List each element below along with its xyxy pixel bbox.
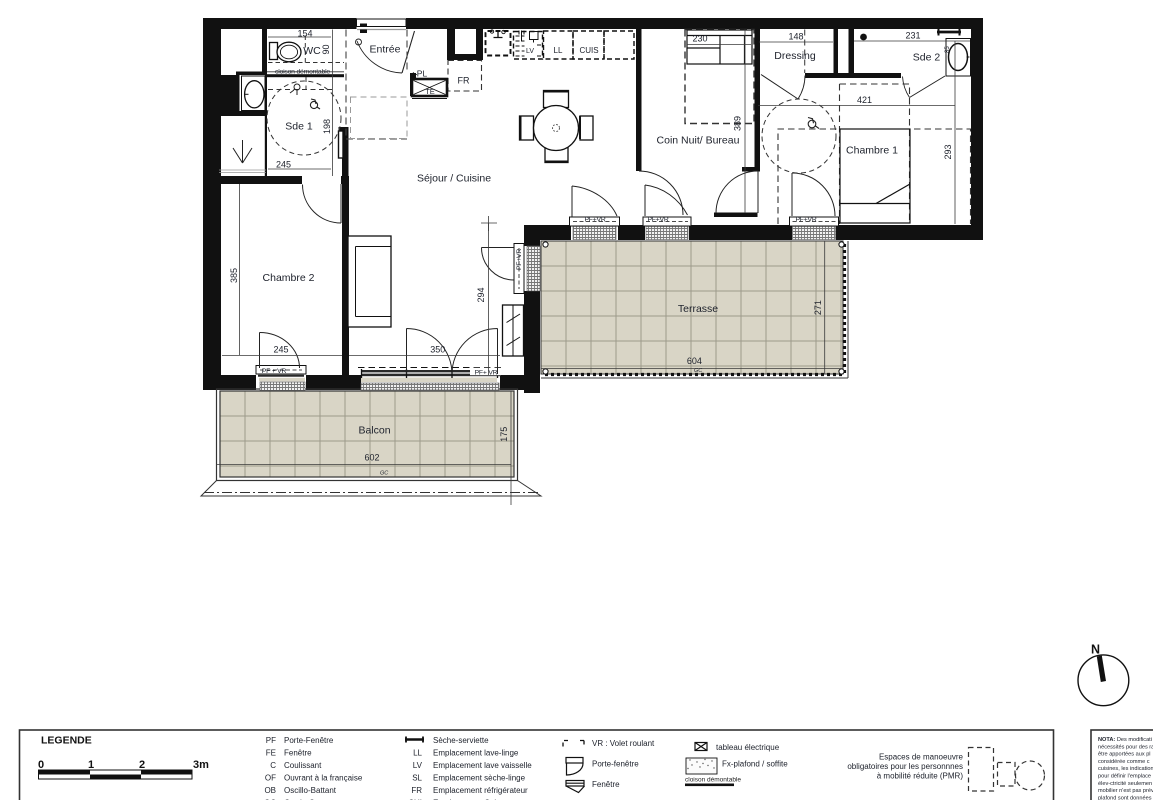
svg-text:OF: OF bbox=[265, 774, 276, 783]
svg-text:CUIS: CUIS bbox=[579, 46, 598, 55]
svg-text:cloison démontable: cloison démontable bbox=[685, 777, 741, 784]
svg-text:Fenêtre: Fenêtre bbox=[284, 749, 312, 758]
svg-text:245: 245 bbox=[276, 160, 291, 170]
svg-text:Porte-fenêtre: Porte-fenêtre bbox=[592, 760, 639, 769]
svg-text:LV: LV bbox=[526, 48, 534, 55]
svg-text:LV: LV bbox=[413, 761, 423, 770]
svg-text:LL: LL bbox=[413, 749, 422, 758]
svg-text:90: 90 bbox=[321, 44, 331, 54]
svg-text:231: 231 bbox=[905, 31, 920, 41]
svg-text:tableau électrique: tableau électrique bbox=[716, 743, 780, 752]
svg-text:PF+ VR: PF+ VR bbox=[475, 370, 498, 377]
svg-text:Sèche-serviette: Sèche-serviette bbox=[433, 736, 489, 745]
svg-text:Coin Nuit/ Bureau: Coin Nuit/ Bureau bbox=[657, 135, 740, 147]
svg-text:148: 148 bbox=[788, 32, 803, 42]
svg-text:Ouvrant à la française: Ouvrant à la française bbox=[284, 774, 363, 783]
svg-text:PF + VR: PF + VR bbox=[262, 368, 287, 375]
svg-text:Chambre 2: Chambre 2 bbox=[263, 272, 315, 284]
svg-text:FE: FE bbox=[266, 749, 276, 758]
svg-text:Oscillo-Battant: Oscillo-Battant bbox=[284, 786, 337, 795]
svg-text:Séjour / Cuisine: Séjour / Cuisine bbox=[417, 173, 491, 185]
svg-text:PF+VR: PF+VR bbox=[647, 217, 668, 224]
svg-text:198: 198 bbox=[322, 119, 332, 134]
svg-text:SL: SL bbox=[412, 774, 422, 783]
svg-text:85: 85 bbox=[945, 46, 951, 53]
svg-text:élev-ctricité seulemen: élev-ctricité seulemen bbox=[1098, 781, 1152, 787]
svg-text:154: 154 bbox=[297, 29, 312, 39]
svg-text:2: 2 bbox=[139, 759, 145, 771]
svg-text:cloison démontable: cloison démontable bbox=[275, 69, 330, 76]
svg-text:Terrasse: Terrasse bbox=[678, 303, 718, 315]
svg-text:Dressing: Dressing bbox=[774, 50, 816, 62]
svg-text:obligatoires pour les personnn: obligatoires pour les personnnes bbox=[847, 762, 963, 771]
svg-text:385: 385 bbox=[229, 268, 239, 283]
svg-text:mobilier n'est pas prév: mobilier n'est pas prév bbox=[1098, 788, 1153, 794]
svg-text:0: 0 bbox=[38, 759, 44, 771]
svg-text:PF: PF bbox=[266, 736, 276, 745]
svg-text:Balcon: Balcon bbox=[358, 425, 390, 437]
svg-text:GC: GC bbox=[694, 368, 702, 374]
svg-text:C: C bbox=[270, 761, 276, 770]
svg-text:GC: GC bbox=[380, 471, 388, 477]
svg-text:389: 389 bbox=[733, 116, 743, 131]
svg-text:Chambre 1: Chambre 1 bbox=[846, 145, 898, 157]
svg-text:cuisines, les indications: cuisines, les indications bbox=[1098, 766, 1153, 772]
svg-text:VR : Volet roulant: VR : Volet roulant bbox=[592, 739, 655, 748]
svg-text:nécessités pour des ra: nécessités pour des ra bbox=[1098, 744, 1153, 750]
svg-text:Emplacement réfrigérateur: Emplacement réfrigérateur bbox=[433, 786, 528, 795]
svg-text:Coulissant: Coulissant bbox=[284, 761, 322, 770]
svg-text:245: 245 bbox=[273, 345, 288, 355]
svg-text:Porte-Fenêtre: Porte-Fenêtre bbox=[284, 736, 334, 745]
svg-text:Sde 1: Sde 1 bbox=[285, 121, 313, 133]
svg-text:1: 1 bbox=[88, 759, 94, 771]
svg-text:271: 271 bbox=[813, 300, 823, 315]
svg-text:Emplacement lave vaisselle: Emplacement lave vaisselle bbox=[433, 761, 532, 770]
svg-text:Fenêtre: Fenêtre bbox=[592, 780, 620, 789]
svg-text:pour définir l'emplace: pour définir l'emplace bbox=[1098, 774, 1151, 780]
svg-text:OB: OB bbox=[264, 786, 276, 795]
svg-text:Entrée: Entrée bbox=[370, 44, 401, 56]
svg-text:LL: LL bbox=[554, 46, 563, 55]
svg-text:à mobilité réduite (PMR): à mobilité réduite (PMR) bbox=[877, 772, 964, 781]
svg-text:TE: TE bbox=[425, 87, 435, 96]
svg-text:FR: FR bbox=[411, 786, 422, 795]
svg-text:considérée comme c: considérée comme c bbox=[1098, 759, 1150, 765]
svg-text:294: 294 bbox=[476, 287, 486, 302]
svg-text:230: 230 bbox=[692, 34, 707, 44]
svg-text:175: 175 bbox=[499, 427, 509, 442]
svg-text:FR: FR bbox=[458, 76, 470, 86]
svg-text:Emplacement sèche-linge: Emplacement sèche-linge bbox=[433, 774, 526, 783]
svg-text:350: 350 bbox=[430, 345, 445, 355]
svg-text:421: 421 bbox=[857, 95, 872, 105]
svg-text:PF+VR: PF+VR bbox=[584, 217, 605, 224]
svg-text:293: 293 bbox=[943, 144, 953, 159]
svg-text:604: 604 bbox=[687, 356, 702, 366]
svg-text:Sde 2: Sde 2 bbox=[913, 52, 941, 64]
svg-text:Emplacement lave-linge: Emplacement lave-linge bbox=[433, 749, 519, 758]
svg-text:plafond sont données: plafond sont données bbox=[1098, 795, 1152, 800]
svg-text:LEGENDE: LEGENDE bbox=[41, 735, 92, 747]
svg-text:N: N bbox=[1091, 643, 1100, 657]
svg-text:Fx-plafond / soffite: Fx-plafond / soffite bbox=[722, 760, 788, 769]
svg-text:être apportées aux pl: être apportées aux pl bbox=[1098, 752, 1151, 758]
svg-text:WC: WC bbox=[303, 45, 321, 57]
svg-text:602: 602 bbox=[364, 453, 379, 463]
svg-text:PF+VR: PF+VR bbox=[516, 249, 523, 270]
svg-text:PF+VR: PF+VR bbox=[795, 217, 816, 224]
svg-text:NOTA: Des modificati: NOTA: Des modificati bbox=[1098, 737, 1152, 743]
svg-text:Espaces de manoeuvre: Espaces de manoeuvre bbox=[879, 753, 964, 762]
svg-text:PL: PL bbox=[417, 69, 428, 79]
svg-text:3m: 3m bbox=[193, 759, 209, 771]
